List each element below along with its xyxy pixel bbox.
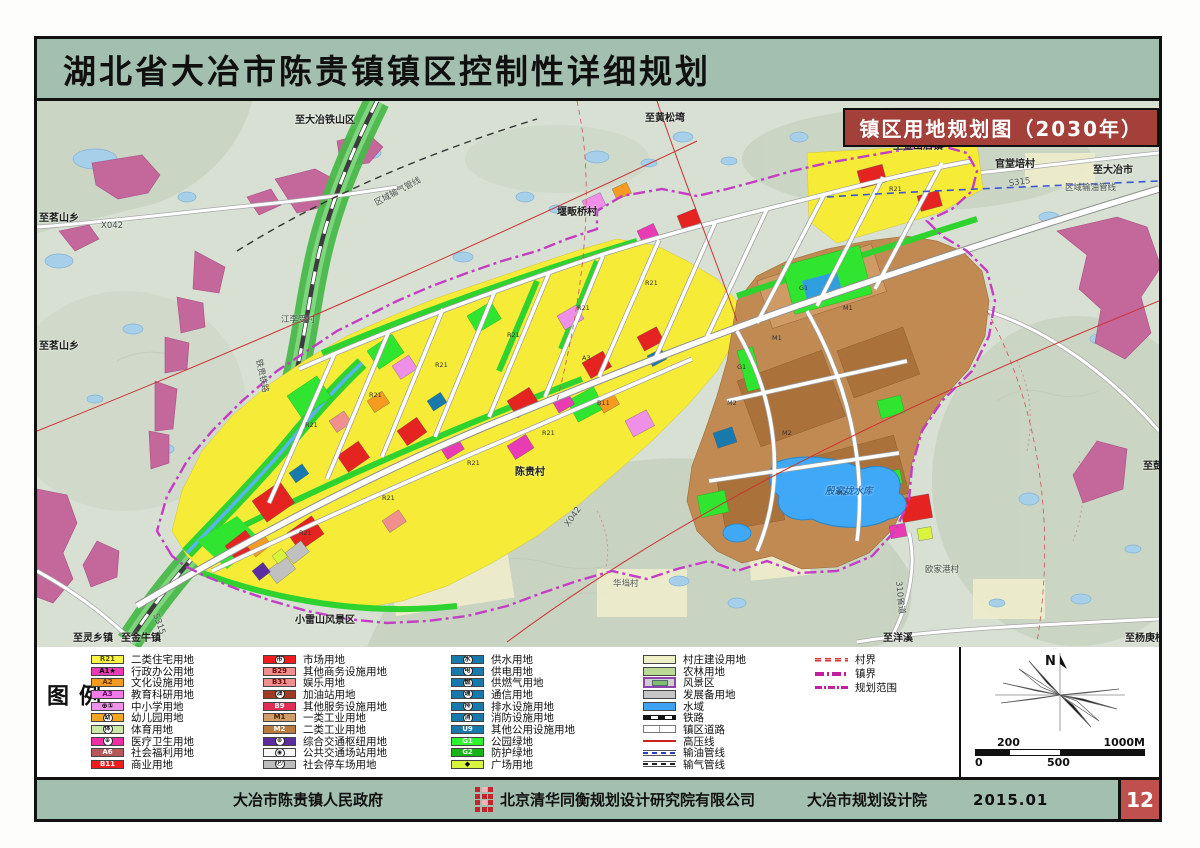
legend-swatch (643, 715, 676, 720)
scale-bar-strip (975, 749, 1145, 756)
legend-swatch: 水 (451, 655, 484, 664)
legend-item: 水供水用地 (451, 654, 643, 665)
legend-item: B29其他商务设施用地 (263, 666, 451, 677)
legend-swatch (643, 761, 676, 767)
legend-label: 规划范围 (855, 680, 897, 695)
footer-bar: 大冶市陈贵镇人民政府 北京清华同衡规划设计研究院有限公司 大冶市规划设计院 20… (37, 780, 1159, 819)
legend-symbol-icon: 油 (275, 690, 285, 699)
legend-symbol-icon: 电 (463, 667, 473, 676)
legend-column-3: 水供水用地电供电用地燃供燃气用地通通信用地排排水设施用地消消防设施用地U9其他公… (451, 653, 643, 771)
scale-label-1000m: 1000M (1103, 736, 1145, 749)
legend-swatch: M1 (263, 713, 296, 722)
legend-swatch: ⊕① (91, 702, 124, 711)
legend-symbol-icon: Ⓟ (275, 760, 285, 769)
legend-swatch: A1★ (91, 667, 124, 676)
legend-label: 社会停车场用地 (303, 757, 377, 772)
legend-swatch: G1 (451, 737, 484, 746)
legend-swatch: 体 (91, 725, 124, 734)
legend-item: 规划范围 (815, 682, 945, 693)
legend-item: 高压线 (643, 736, 815, 747)
legend-swatch: 市 (263, 655, 296, 664)
legend-item: 输油管线 (643, 747, 815, 758)
legend-swatch (643, 725, 676, 733)
legend-item: 农林用地 (643, 666, 815, 677)
legend-swatch: M2 (263, 725, 296, 734)
legend-swatch (643, 677, 676, 688)
plan-sheet: 湖北省大冶市陈贵镇镇区控制性详细规划 (34, 36, 1162, 822)
legend-swatch: B11 (91, 760, 124, 769)
map-area: 至大冶铁山区X042至茗山乡至茗山乡至黄松塆堰畈桥村官堂培村至金山店镇至大冶市S… (37, 101, 1159, 647)
legend-item: 村界 (815, 654, 945, 665)
legend-symbol-icon: 消 (463, 713, 473, 722)
qinghua-tongheng-logo (475, 787, 493, 812)
scale-labels-bottom: 0 500 (975, 756, 1145, 769)
legend-swatch: ◆ (451, 760, 484, 769)
page-title: 湖北省大冶市陈贵镇镇区控制性详细规划 (63, 45, 711, 93)
legend-item: 燃供燃气用地 (451, 677, 643, 688)
legend-swatch (815, 686, 848, 689)
legend-swatch (643, 702, 676, 711)
legend-swatch: 通 (451, 690, 484, 699)
legend-label: 镇界 (855, 666, 876, 681)
legend-swatch: B29 (263, 667, 296, 676)
legend-swatch: ⊛ (263, 737, 296, 746)
legend-columns: R21二类住宅用地A1★行政办公用地A2文化设施用地A3教育科研用地⊕①中小学用… (91, 653, 957, 771)
legend-symbol-icon: ◉ (275, 748, 285, 757)
legend-item: 镇界 (815, 668, 945, 679)
legend-swatch (815, 672, 848, 676)
legend-swatch: 幼 (91, 713, 124, 722)
scale-label-500: 500 (1047, 756, 1070, 769)
legend-item: A6社会福利用地 (91, 747, 263, 758)
legend-swatch (643, 690, 676, 699)
legend-swatch: 消 (451, 713, 484, 722)
legend-swatch: A6 (91, 748, 124, 757)
legend-symbol-icon: ⊛ (275, 737, 285, 746)
legend-item: 村庄建设用地 (643, 654, 815, 665)
legend-swatch: 排 (451, 702, 484, 711)
scale-bar: 200 1000M 0 500 (975, 736, 1145, 769)
legend-swatch: A2 (91, 678, 124, 687)
legend-symbol-icon: 市 (275, 655, 285, 664)
legend-swatch: 电 (451, 667, 484, 676)
legend-symbol-icon: 排 (463, 702, 473, 711)
footer-design-company: 北京清华同衡规划设计研究院有限公司 (500, 789, 755, 810)
legend-item: ◆广场用地 (451, 759, 643, 770)
legend-column-5: 村界镇界规划范围 (815, 653, 945, 771)
page: { "title": "湖北省大冶市陈贵镇镇区控制性详细规划", "badge"… (0, 0, 1200, 848)
legend-symbol-icon: ⊕ (103, 737, 113, 746)
legend-item: 发展备用地 (643, 689, 815, 700)
legend-swatch: G2 (451, 748, 484, 757)
legend-symbol-icon: 水 (463, 655, 473, 664)
legend-swatch (643, 740, 676, 742)
legend-item: 输气管线 (643, 759, 815, 770)
legend-swatch (643, 655, 676, 664)
legend-item: 幼幼儿园用地 (91, 712, 263, 723)
legend-item: G2防护绿地 (451, 747, 643, 758)
legend-title: 图例 (39, 662, 91, 762)
legend-swatch (643, 667, 676, 676)
scale-label-200: 200 (997, 736, 1020, 749)
legend-symbol-icon: 通 (463, 690, 473, 699)
legend-swatch: ⊕ (91, 737, 124, 746)
legend-symbol-icon: 燃 (463, 678, 473, 687)
legend-column-1: R21二类住宅用地A1★行政办公用地A2文化设施用地A3教育科研用地⊕①中小学用… (91, 653, 263, 771)
legend-column-2: 市市场用地B29其他商务设施用地B31娱乐用地油加油站用地B9其他服务设施用地M… (263, 653, 451, 771)
legend-swatch (815, 658, 848, 662)
legend-swatch: B31 (263, 678, 296, 687)
legend-item: B31娱乐用地 (263, 677, 451, 688)
legend-symbol-icon: 体 (103, 725, 113, 734)
legend-swatch: ◉ (263, 748, 296, 757)
legend-item: 镇区道路 (643, 724, 815, 735)
legend-item: G1公园绿地 (451, 736, 643, 747)
legend-item: U9其他公用设施用地 (451, 724, 643, 735)
compass-rose: N (985, 649, 1135, 733)
legend-item: 电供电用地 (451, 666, 643, 677)
legend-swatch: U9 (451, 725, 484, 734)
legend-swatch (643, 750, 676, 756)
legend-row: 图例 R21二类住宅用地A1★行政办公用地A2文化设施用地A3教育科研用地⊕①中… (37, 647, 1159, 780)
legend-label: 广场用地 (491, 757, 533, 772)
legend-label: 输气管线 (683, 757, 725, 772)
page-number-box: 12 (1118, 780, 1159, 819)
compass-cell: N 200 1000M 0 500 (961, 647, 1159, 777)
legend-item: Ⓟ社会停车场用地 (263, 759, 451, 770)
map-title-badge: 镇区用地规划图（2030年） (843, 108, 1159, 147)
legend-label: 村界 (855, 652, 876, 667)
title-bar: 湖北省大冶市陈贵镇镇区控制性详细规划 (37, 39, 1159, 101)
legend-item: B11商业用地 (91, 759, 263, 770)
legend-label: 商业用地 (131, 757, 173, 772)
footer-government: 大冶市陈贵镇人民政府 (233, 789, 383, 810)
legend-column-4: 村庄建设用地农林用地风景区发展备用地水域铁路镇区道路高压线输油管线输气管线 (643, 653, 815, 771)
legend-swatch: Ⓟ (263, 760, 296, 769)
legend-item: 水域 (643, 701, 815, 712)
legend-item: 铁路 (643, 712, 815, 723)
legend-swatch: 燃 (451, 678, 484, 687)
legend-symbol-icon: 幼 (103, 713, 113, 722)
scale-labels-top: 200 1000M (975, 736, 1145, 749)
legend-swatch: B9 (263, 702, 296, 711)
scale-label-0: 0 (975, 756, 983, 769)
legend-box: 图例 R21二类住宅用地A1★行政办公用地A2文化设施用地A3教育科研用地⊕①中… (37, 647, 961, 777)
legend-swatch: R21 (91, 655, 124, 664)
footer-date: 2015.01 (973, 791, 1048, 809)
footer-local-institute: 大冶市规划设计院 (807, 789, 927, 810)
compass-north-label: N (1045, 654, 1056, 669)
legend-swatch: A3 (91, 690, 124, 699)
legend-swatch: 油 (263, 690, 296, 699)
planning-map-graphic (37, 101, 1159, 647)
